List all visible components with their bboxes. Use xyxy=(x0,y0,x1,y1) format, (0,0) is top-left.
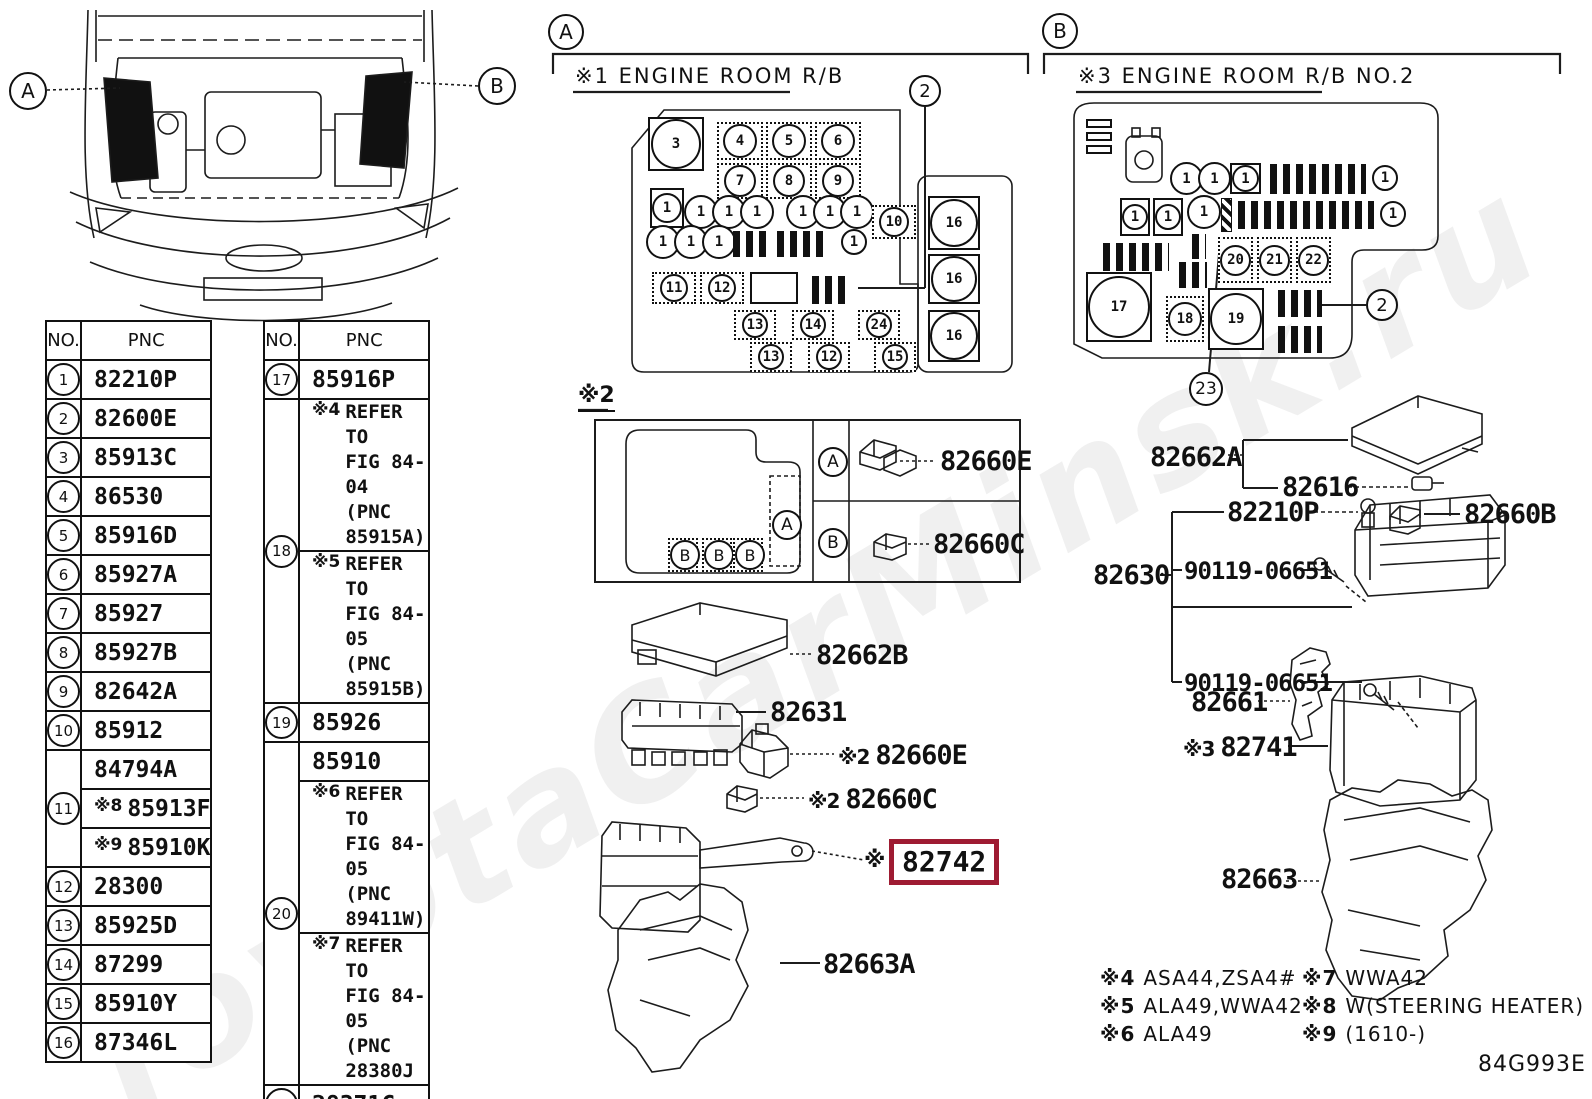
fuse-cell: 1 xyxy=(1198,164,1227,193)
fuse-cell: 1 xyxy=(1378,198,1408,229)
section-b-letter: B xyxy=(1042,13,1078,49)
ref-mark: ※4 xyxy=(312,400,340,420)
table-row: 585916D xyxy=(46,516,211,555)
fuse-number: 1 xyxy=(1122,204,1148,230)
fuse-number: 4 xyxy=(723,124,757,158)
table-row: 982642A xyxy=(46,672,211,711)
fuse-number: 1 xyxy=(1232,165,1259,192)
footnote-9: ※9(1610-) xyxy=(1302,1022,1426,1046)
row-number: 16 xyxy=(47,1026,80,1059)
row-number: 8 xyxy=(47,636,80,669)
table-row: 1184794A xyxy=(46,750,211,789)
table-row: 1785916P xyxy=(264,360,429,399)
fuse-cell: 7 xyxy=(717,163,763,199)
pnc-cell[interactable]: 87299 xyxy=(81,945,211,984)
fuse-cell: 1 xyxy=(740,197,770,227)
pnc-value: 85927B xyxy=(94,640,177,666)
no-cell: 5 xyxy=(46,516,81,555)
no-cell: 16 xyxy=(46,1023,81,1062)
table-row: 1585910Y xyxy=(46,984,211,1023)
fuse-number: 13 xyxy=(742,312,768,338)
row-number: 3 xyxy=(47,441,80,474)
fuse-cell: 16 xyxy=(928,196,980,250)
table-row: 885927B xyxy=(46,633,211,672)
parts-catalog-page: ToyotaCarMinsk.ru xyxy=(0,0,1592,1099)
col-header-no: NO. xyxy=(264,321,299,360)
fuse-cell xyxy=(1086,119,1112,128)
ref-mark: ※5 xyxy=(312,552,340,572)
no-cell: 6 xyxy=(46,555,81,594)
fuse-cell: 13 xyxy=(750,342,792,372)
table-row: 685927A xyxy=(46,555,211,594)
part-82630[interactable]: 82630 xyxy=(1093,560,1169,591)
row-number: 10 xyxy=(47,714,80,747)
fuse-cell: 1 xyxy=(1120,198,1150,236)
fuse-cell: 1 xyxy=(1370,163,1400,193)
fuse-cell: 5 xyxy=(766,122,812,160)
fuse-cell xyxy=(1278,326,1322,353)
fuse-number: 16 xyxy=(931,256,977,302)
car-callout-b: B xyxy=(478,67,516,105)
callout-2-b: 2 xyxy=(1366,289,1398,321)
pnc-cell[interactable]: 86530 xyxy=(81,477,211,516)
pnc-cell[interactable]: ※7REFER TO FIG 84-05 (PNC 28380J xyxy=(299,933,429,1085)
pnc-value: 87346L xyxy=(94,1030,177,1056)
no-cell: 10 xyxy=(46,711,81,750)
pnc-cell[interactable]: 85927A xyxy=(81,555,211,594)
pnc-value: 28371C xyxy=(312,1092,395,1099)
row-number: 5 xyxy=(47,519,80,552)
fuse-cell: 1 xyxy=(1187,197,1217,227)
relay-b-letter: B xyxy=(735,540,765,570)
pnc-cell[interactable]: 87346L xyxy=(81,1023,211,1062)
fuse-number: 11 xyxy=(660,274,688,302)
fuse-cell: 1 xyxy=(646,227,676,257)
row-number: 2 xyxy=(47,402,80,435)
no-cell: 8 xyxy=(46,633,81,672)
row-number: 13 xyxy=(47,909,80,942)
row-number: 18 xyxy=(265,535,298,568)
fuse-cell: 9 xyxy=(815,163,861,199)
pnc-value: 28300 xyxy=(94,874,163,900)
table-row: 282600E xyxy=(46,399,211,438)
fuse-cell xyxy=(777,231,825,257)
pnc-value: REFER TO FIG 84-05 (PNC 28380J xyxy=(345,934,428,1084)
fuse-number: 16 xyxy=(930,199,978,247)
table-row: 2128371C xyxy=(264,1085,429,1099)
row-number: 9 xyxy=(47,675,80,708)
fuse-cell: 1 xyxy=(840,197,870,227)
pnc-value: 85916P xyxy=(312,367,395,393)
pnc-value: 82600E xyxy=(94,406,177,432)
col-header-no: NO. xyxy=(46,321,81,360)
fuse-number: 18 xyxy=(1168,302,1202,336)
fuse-cell: 1 xyxy=(684,197,714,227)
pnc-cell[interactable]: ※4REFER TO FIG 84-04 (PNC 85915A) xyxy=(299,399,429,551)
part-82662B[interactable]: 82662B xyxy=(816,640,908,671)
fuse-cell: 17 xyxy=(1086,272,1152,342)
table-row: 1985926 xyxy=(264,703,429,742)
relay-b-letter: B xyxy=(704,540,734,570)
section-b-title: ※3 ENGINE ROOM R/B NO.2 xyxy=(1078,64,1415,88)
pnc-value: 85927 xyxy=(94,601,163,627)
ref-mark: ※7 xyxy=(312,934,340,954)
fuse-cell xyxy=(733,231,767,257)
part-82660E-ref[interactable]: 82660E xyxy=(940,446,1032,477)
part-82662A[interactable]: 82662A xyxy=(1150,442,1242,473)
pnc-cell[interactable]: 82642A xyxy=(81,672,211,711)
fuse-cell xyxy=(1278,290,1322,317)
fuse-cell: 10 xyxy=(872,205,916,239)
part-82663A[interactable]: 82663A xyxy=(823,949,915,980)
table-row: 1385925D xyxy=(46,906,211,945)
no-cell: 11 xyxy=(46,750,81,867)
part-90119-06651-1[interactable]: 90119-06651 xyxy=(1184,557,1332,585)
footnote-4: ※4ASA44,ZSA4# xyxy=(1100,966,1297,990)
fuse-number: 1 xyxy=(702,225,736,259)
fuse-cell: 16 xyxy=(928,254,980,304)
footnote-7: ※7WWA42 xyxy=(1302,966,1428,990)
fuse-number: 1 xyxy=(840,195,874,229)
pnc-cell[interactable]: 85910Y xyxy=(81,984,211,1023)
pnc-cell[interactable]: 85916P xyxy=(299,360,429,399)
fuse-number: 3 xyxy=(651,119,701,169)
part-82660E-mid[interactable]: ※282660E xyxy=(838,740,967,771)
pnc-value: REFER TO FIG 84-05 (PNC 85915B) xyxy=(345,552,428,702)
fuse-cell: 12 xyxy=(700,272,744,304)
fuse-cell: 1 xyxy=(674,227,704,257)
col-header-pnc: PNC xyxy=(299,321,429,360)
fuse-cell: 1 xyxy=(712,197,742,227)
ref-mark: ※3 xyxy=(1183,737,1214,761)
part-82660C-mid[interactable]: ※282660C xyxy=(808,784,937,815)
pnc-value: 85910K xyxy=(127,835,210,861)
relay-b-slot: B xyxy=(668,538,698,572)
fuse-cell: 21 xyxy=(1257,237,1292,283)
col-header-pnc: PNC xyxy=(81,321,211,360)
no-cell: 9 xyxy=(46,672,81,711)
row-number: 4 xyxy=(47,480,80,513)
pnc-cell[interactable]: 85925D xyxy=(81,906,211,945)
fuse-number: 7 xyxy=(724,165,756,197)
table-row: 182210P xyxy=(46,360,211,399)
section-a-title: ※1 ENGINE ROOM R/B xyxy=(575,64,844,88)
fuse-number: 19 xyxy=(1210,293,1262,345)
fuse-cell xyxy=(1270,164,1366,194)
fuse-cell xyxy=(1086,132,1112,141)
row-number: 17 xyxy=(265,363,298,396)
row-number: 12 xyxy=(47,870,80,903)
fuse-number: 12 xyxy=(816,344,842,370)
fuse-number: 10 xyxy=(879,207,909,237)
no-cell: 3 xyxy=(46,438,81,477)
pnc-cell[interactable]: 82210P xyxy=(81,360,211,399)
fuse-number: 20 xyxy=(1220,245,1251,276)
pnc-value: REFER TO FIG 84-05 (PNC 89411W) xyxy=(345,782,428,932)
no-cell: 13 xyxy=(46,906,81,945)
pnc-value: 85910Y xyxy=(94,991,177,1017)
fuse-cell xyxy=(812,276,850,304)
pnc-value: 86530 xyxy=(94,484,163,510)
no-cell: 2 xyxy=(46,399,81,438)
pnc-value: 85916D xyxy=(94,523,177,549)
relay-b-letter: B xyxy=(670,540,700,570)
fuse-cell: 6 xyxy=(815,122,861,160)
fuse-number: 1 xyxy=(1155,204,1181,230)
fuse-number: 1 xyxy=(740,195,774,229)
fuse-cell xyxy=(1103,243,1169,271)
fuse-cell: 15 xyxy=(874,342,916,372)
no-cell: 20 xyxy=(264,742,299,1085)
table-row: 18※4REFER TO FIG 84-04 (PNC 85915A) xyxy=(264,399,429,551)
pnc-value: REFER TO FIG 84-04 (PNC 85915A) xyxy=(345,400,428,550)
pnc-cell[interactable]: 84794A xyxy=(81,750,211,789)
fuse-cell xyxy=(1221,198,1232,232)
pnc-value: 85912 xyxy=(94,718,163,744)
fuse-cell: 16 xyxy=(928,310,980,362)
table-row: 385913C xyxy=(46,438,211,477)
part-82742-highlighted[interactable]: 82742 xyxy=(889,839,999,885)
fuse-cell: 14 xyxy=(792,310,834,340)
pnc-value: 87299 xyxy=(94,952,163,978)
fuse-cell xyxy=(1086,145,1112,154)
fuse-number: 1 xyxy=(841,229,867,255)
relay-row-a-key: A xyxy=(818,447,848,477)
row-number: 6 xyxy=(47,558,80,591)
no-cell: 14 xyxy=(46,945,81,984)
no-cell: 4 xyxy=(46,477,81,516)
part-82741[interactable]: ※382741 xyxy=(1183,732,1297,763)
fuse-cell: 1 xyxy=(1170,164,1199,193)
no-cell: 18 xyxy=(264,399,299,703)
no-cell: 1 xyxy=(46,360,81,399)
fuse-number: 1 xyxy=(1380,201,1406,227)
fuse-number: 22 xyxy=(1298,245,1329,276)
relay-b-slot: B xyxy=(733,538,763,572)
pnc-value: 85926 xyxy=(312,710,381,736)
pnc-cell[interactable]: 85927B xyxy=(81,633,211,672)
row-number: 20 xyxy=(265,897,298,930)
ref-mark-82742: ※ xyxy=(864,848,885,873)
row-number: 14 xyxy=(47,948,80,981)
part-82660C-ref[interactable]: 82660C xyxy=(933,529,1025,560)
relay-ref-note: ※2 xyxy=(578,383,615,412)
row-number: 11 xyxy=(47,792,80,825)
fuse-cell: 12 xyxy=(808,342,850,372)
row-number: 15 xyxy=(47,987,80,1020)
pnc-cell[interactable]: ※6REFER TO FIG 84-05 (PNC 89411W) xyxy=(299,781,429,933)
ref-mark: ※9 xyxy=(94,835,122,855)
pnc-cell[interactable]: ※885913F xyxy=(81,789,211,828)
fuse-cell: 20 xyxy=(1218,237,1253,283)
ref-mark: ※2 xyxy=(808,789,839,813)
fuse-cell: 1 xyxy=(838,227,870,257)
fuse-number: 12 xyxy=(708,274,736,302)
fuse-cell: 1 xyxy=(702,227,732,257)
table-row: 785927 xyxy=(46,594,211,633)
part-82663[interactable]: 82663 xyxy=(1221,864,1297,895)
fuse-cell xyxy=(750,272,798,304)
fuse-cell: 24 xyxy=(858,310,900,340)
fuse-cell: 1 xyxy=(786,197,816,227)
fuse-cell: 13 xyxy=(734,310,776,340)
part-82631[interactable]: 82631 xyxy=(770,697,846,728)
relay-b-slot: B xyxy=(702,538,732,572)
fuse-number: 15 xyxy=(882,344,908,370)
section-a-letter: A xyxy=(548,14,584,50)
fuse-cell xyxy=(1179,262,1207,288)
part-82210P[interactable]: 82210P xyxy=(1227,497,1319,528)
row-number: 1 xyxy=(47,363,80,396)
footnote-5: ※5ALA49,WWA42 xyxy=(1100,994,1303,1018)
relay-row-b-key: B xyxy=(818,528,848,558)
fuse-cell: 8 xyxy=(766,163,812,199)
fuse-number: 1 xyxy=(1187,195,1221,229)
fuse-number: 16 xyxy=(930,312,978,360)
ref-mark: ※8 xyxy=(94,796,122,816)
footnote-8: ※8W(STEERING HEATER) xyxy=(1302,994,1584,1018)
relay-slot-a: A xyxy=(772,510,802,540)
fuse-number: 17 xyxy=(1088,276,1150,338)
table-row: 1487299 xyxy=(46,945,211,984)
fuse-cell: 1 xyxy=(650,188,684,228)
no-cell: 17 xyxy=(264,360,299,399)
table-row: 1228300 xyxy=(46,867,211,906)
fuse-cell: 3 xyxy=(648,117,704,171)
car-callout-a: A xyxy=(9,72,47,110)
fuse-cell: 19 xyxy=(1208,288,1264,350)
table-row: 2085910 xyxy=(264,742,429,781)
no-cell: 15 xyxy=(46,984,81,1023)
page-code: 84G993E xyxy=(1478,1052,1586,1077)
no-cell: 19 xyxy=(264,703,299,742)
pnc-value: 85927A xyxy=(94,562,177,588)
pnc-cell[interactable]: 28371C xyxy=(299,1085,429,1099)
row-number: 19 xyxy=(265,706,298,739)
table-row: 486530 xyxy=(46,477,211,516)
pnc-value: 85913C xyxy=(94,445,177,471)
pnc-value: 85925D xyxy=(94,913,177,939)
pnc-value: 82642A xyxy=(94,679,177,705)
ref-mark: ※6 xyxy=(312,782,340,802)
no-cell: 12 xyxy=(46,867,81,906)
pnc-cell[interactable]: 85912 xyxy=(81,711,211,750)
callout-2-a: 2 xyxy=(909,75,941,107)
no-cell: 21 xyxy=(264,1085,299,1099)
table-row: 1085912 xyxy=(46,711,211,750)
pnc-cell[interactable]: 85916D xyxy=(81,516,211,555)
footnote-6: ※6ALA49 xyxy=(1100,1022,1213,1046)
parts-table: NO.PNC1785916P18※4REFER TO FIG 84-04 (PN… xyxy=(263,320,430,1099)
ref-mark: ※2 xyxy=(838,745,869,769)
parts-table: NO.PNC182210P282600E385913C486530585916D… xyxy=(45,320,212,1063)
fuse-cell: 18 xyxy=(1166,296,1204,342)
row-number: 21 xyxy=(265,1088,298,1099)
fuse-number: 1 xyxy=(652,193,682,223)
fuse-number: 24 xyxy=(866,312,892,338)
pnc-cell[interactable]: 82600E xyxy=(81,399,211,438)
fuse-number: 13 xyxy=(758,344,784,370)
pnc-value: 82210P xyxy=(94,367,177,393)
fuse-number: 8 xyxy=(773,165,805,197)
fuse-cell xyxy=(1192,234,1206,259)
part-82660B[interactable]: 82660B xyxy=(1464,499,1556,530)
part-82661[interactable]: 82661 xyxy=(1191,687,1267,718)
no-cell: 7 xyxy=(46,594,81,633)
fuse-number: 14 xyxy=(800,312,826,338)
fuse-cell: 1 xyxy=(813,197,843,227)
fuse-cell: 1 xyxy=(1153,198,1183,236)
fuse-number: 9 xyxy=(822,165,854,197)
pnc-value: 84794A xyxy=(94,757,177,783)
pnc-cell[interactable]: 28300 xyxy=(81,867,211,906)
pnc-cell[interactable]: ※5REFER TO FIG 84-05 (PNC 85915B) xyxy=(299,551,429,703)
pnc-cell[interactable]: 85910 xyxy=(299,742,429,781)
pnc-cell[interactable]: 85926 xyxy=(299,703,429,742)
pnc-cell[interactable]: 85927 xyxy=(81,594,211,633)
callout-23: 23 xyxy=(1189,372,1223,406)
fuse-number: 1 xyxy=(1198,162,1231,195)
pnc-value: 85913F xyxy=(127,796,210,822)
row-number: 7 xyxy=(47,597,80,630)
fuse-cell: 4 xyxy=(717,122,763,160)
fuse-cell: 11 xyxy=(652,272,696,304)
fuse-cell: 1 xyxy=(1230,163,1261,194)
table-row: 1687346L xyxy=(46,1023,211,1062)
pnc-cell[interactable]: ※985910K xyxy=(81,828,211,867)
fuse-number: 1 xyxy=(1372,165,1398,191)
pnc-value: 85910 xyxy=(312,749,381,775)
pnc-cell[interactable]: 85913C xyxy=(81,438,211,477)
fuse-number: 21 xyxy=(1259,245,1290,276)
fuse-number: 5 xyxy=(772,124,806,158)
fuse-number: 6 xyxy=(821,124,855,158)
fuse-cell xyxy=(1238,201,1374,229)
fuse-cell: 22 xyxy=(1296,237,1331,283)
